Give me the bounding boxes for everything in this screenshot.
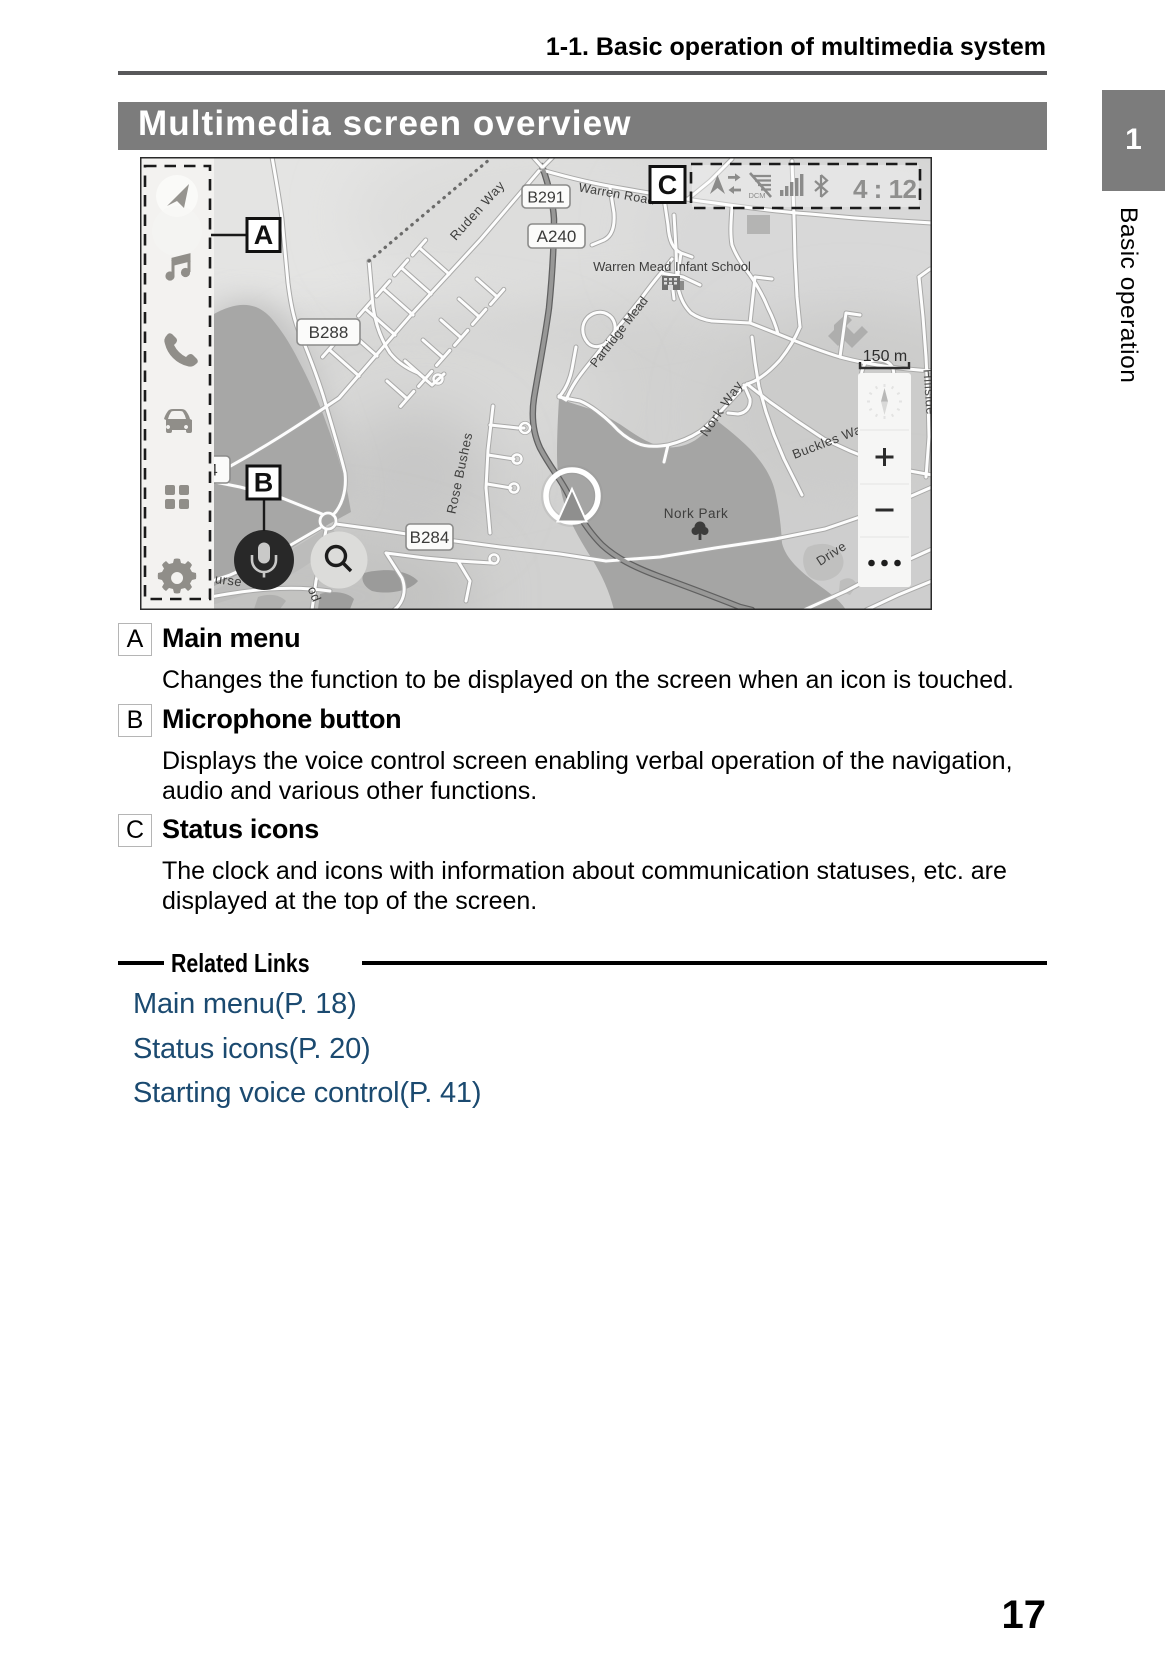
svg-text:B: B (254, 468, 274, 498)
svg-text:B291: B291 (527, 189, 564, 206)
svg-text:150 m: 150 m (863, 348, 907, 365)
svg-text:A240: A240 (537, 227, 577, 246)
svg-text:4 : 12: 4 : 12 (853, 174, 917, 204)
svg-text:A: A (254, 220, 274, 250)
svg-text:B284: B284 (410, 528, 450, 547)
svg-text:B288: B288 (309, 323, 349, 342)
svg-text:Warren Mead Infant School: Warren Mead Infant School (593, 259, 751, 274)
svg-text:DCM: DCM (748, 191, 765, 200)
svg-text:Nork Park: Nork Park (664, 506, 729, 521)
svg-text:C: C (658, 170, 678, 200)
